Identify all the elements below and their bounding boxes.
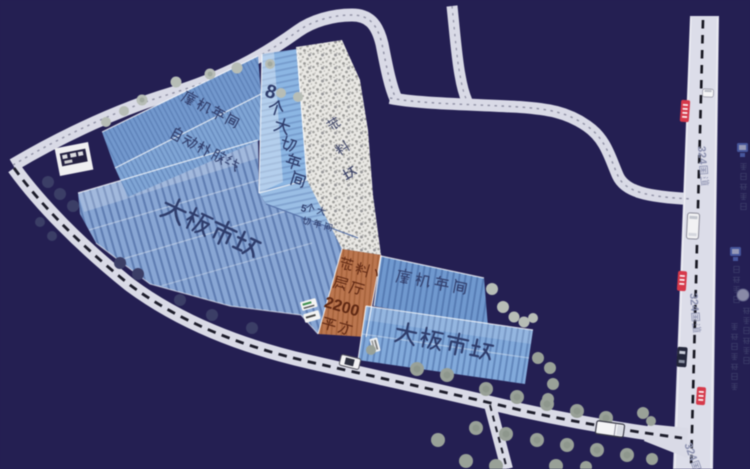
svg-text:324: 324 [687,293,700,313]
svg-text:324: 324 [695,146,708,166]
